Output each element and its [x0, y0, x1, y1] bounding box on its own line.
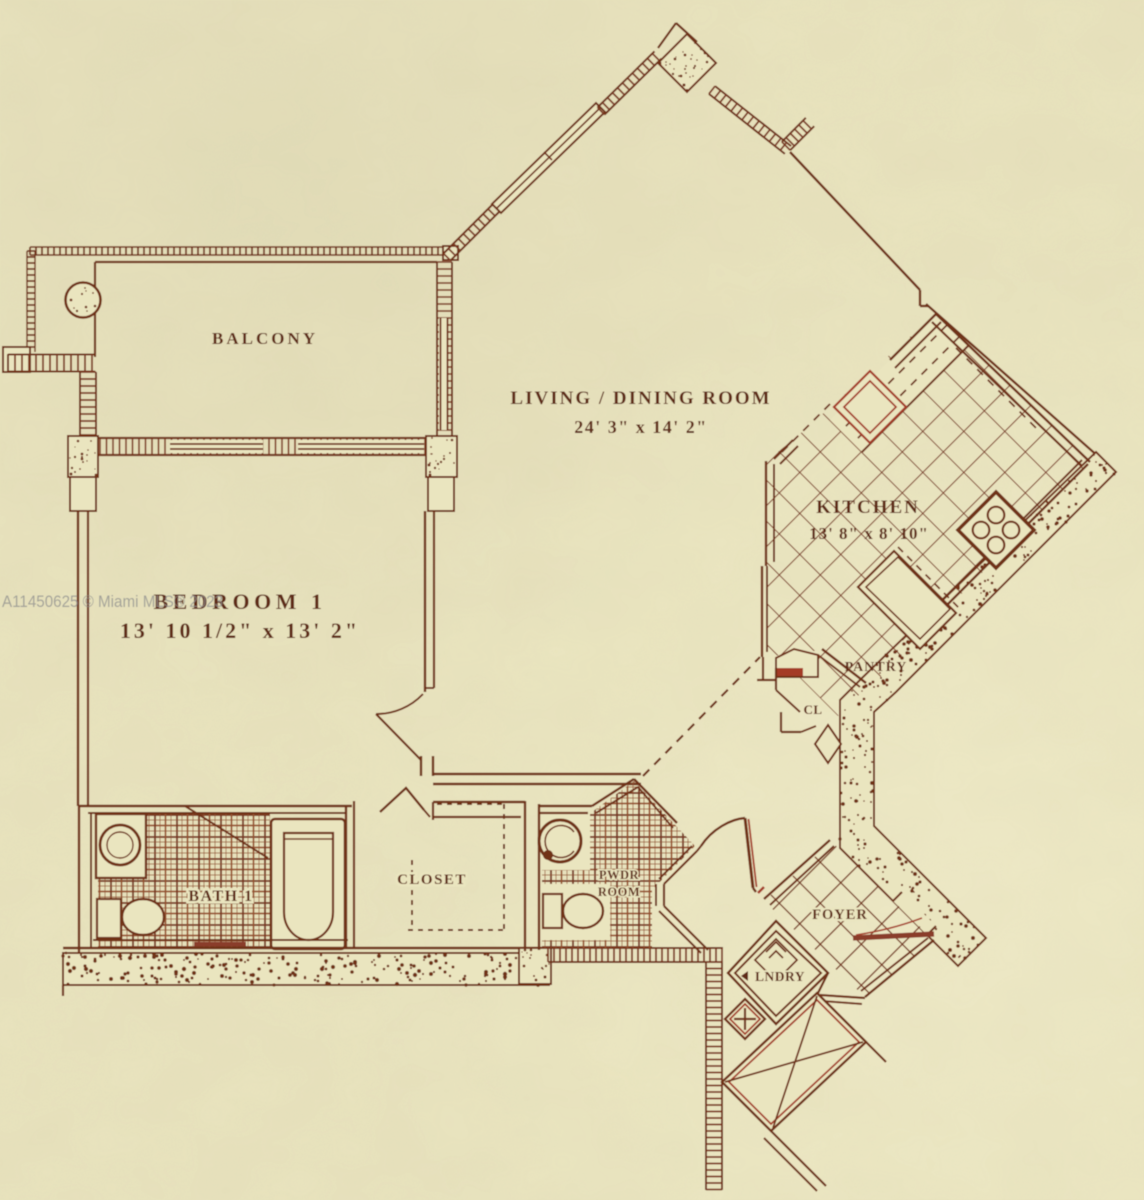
svg-text:24' 3" x 14' 2": 24' 3" x 14' 2"	[574, 417, 708, 437]
svg-text:CLOSET: CLOSET	[397, 872, 467, 888]
svg-text:13' 8" x 8' 10": 13' 8" x 8' 10"	[809, 524, 929, 543]
svg-text:CL: CL	[803, 702, 822, 717]
svg-text:A11450625 © Miami MLS® 2023: A11450625 © Miami MLS® 2023	[2, 593, 223, 611]
svg-text:FOYER: FOYER	[812, 907, 868, 923]
svg-text:PWDR: PWDR	[599, 868, 640, 882]
svg-text:PANTRY: PANTRY	[845, 660, 908, 675]
svg-text:LNDRY: LNDRY	[755, 969, 805, 984]
svg-text:13' 10 1/2" x 13' 2": 13' 10 1/2" x 13' 2"	[120, 618, 360, 643]
svg-text:BATH 1: BATH 1	[188, 888, 253, 905]
svg-text:LIVING / DINING ROOM: LIVING / DINING ROOM	[510, 388, 771, 409]
svg-text:KITCHEN: KITCHEN	[816, 497, 920, 518]
svg-text:ROOM: ROOM	[598, 885, 640, 899]
svg-text:BALCONY: BALCONY	[212, 329, 318, 348]
